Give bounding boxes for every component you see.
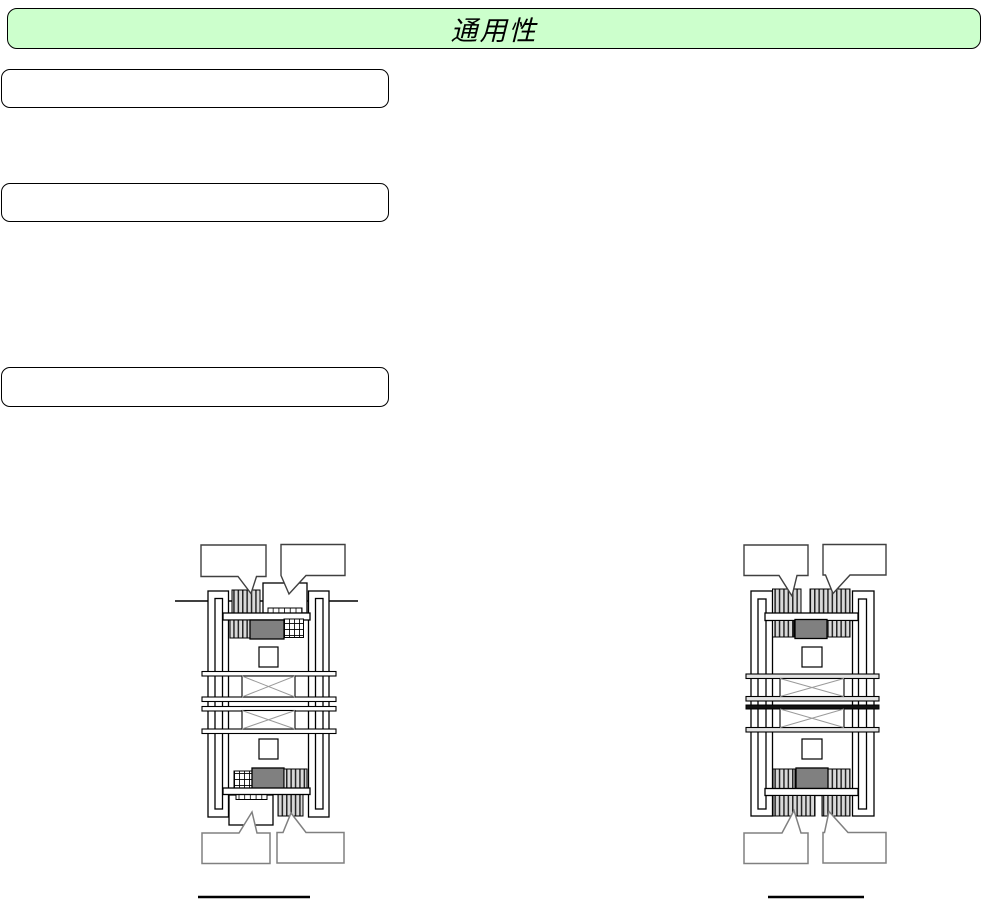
title-banner: 通用性 (7, 8, 981, 49)
callout-top-left[interactable] (744, 545, 808, 596)
text-box-2[interactable] (1, 183, 389, 222)
callout-top-left[interactable] (201, 545, 266, 594)
callout-bottom-left[interactable] (744, 811, 808, 864)
slide-page: 通用性 (0, 0, 988, 900)
right-cross-section-diagram (738, 533, 898, 900)
callout-bottom-right[interactable] (823, 812, 886, 864)
callout-bottom-right[interactable] (277, 813, 344, 863)
text-box-1[interactable] (1, 69, 389, 108)
callout-top-right[interactable] (823, 545, 886, 594)
machine-body (202, 583, 336, 825)
left-cross-section-diagram (168, 533, 373, 900)
machine-body (746, 589, 879, 816)
page-title: 通用性 (451, 9, 538, 48)
callout-top-right[interactable] (281, 545, 345, 595)
text-box-3[interactable] (1, 367, 389, 407)
